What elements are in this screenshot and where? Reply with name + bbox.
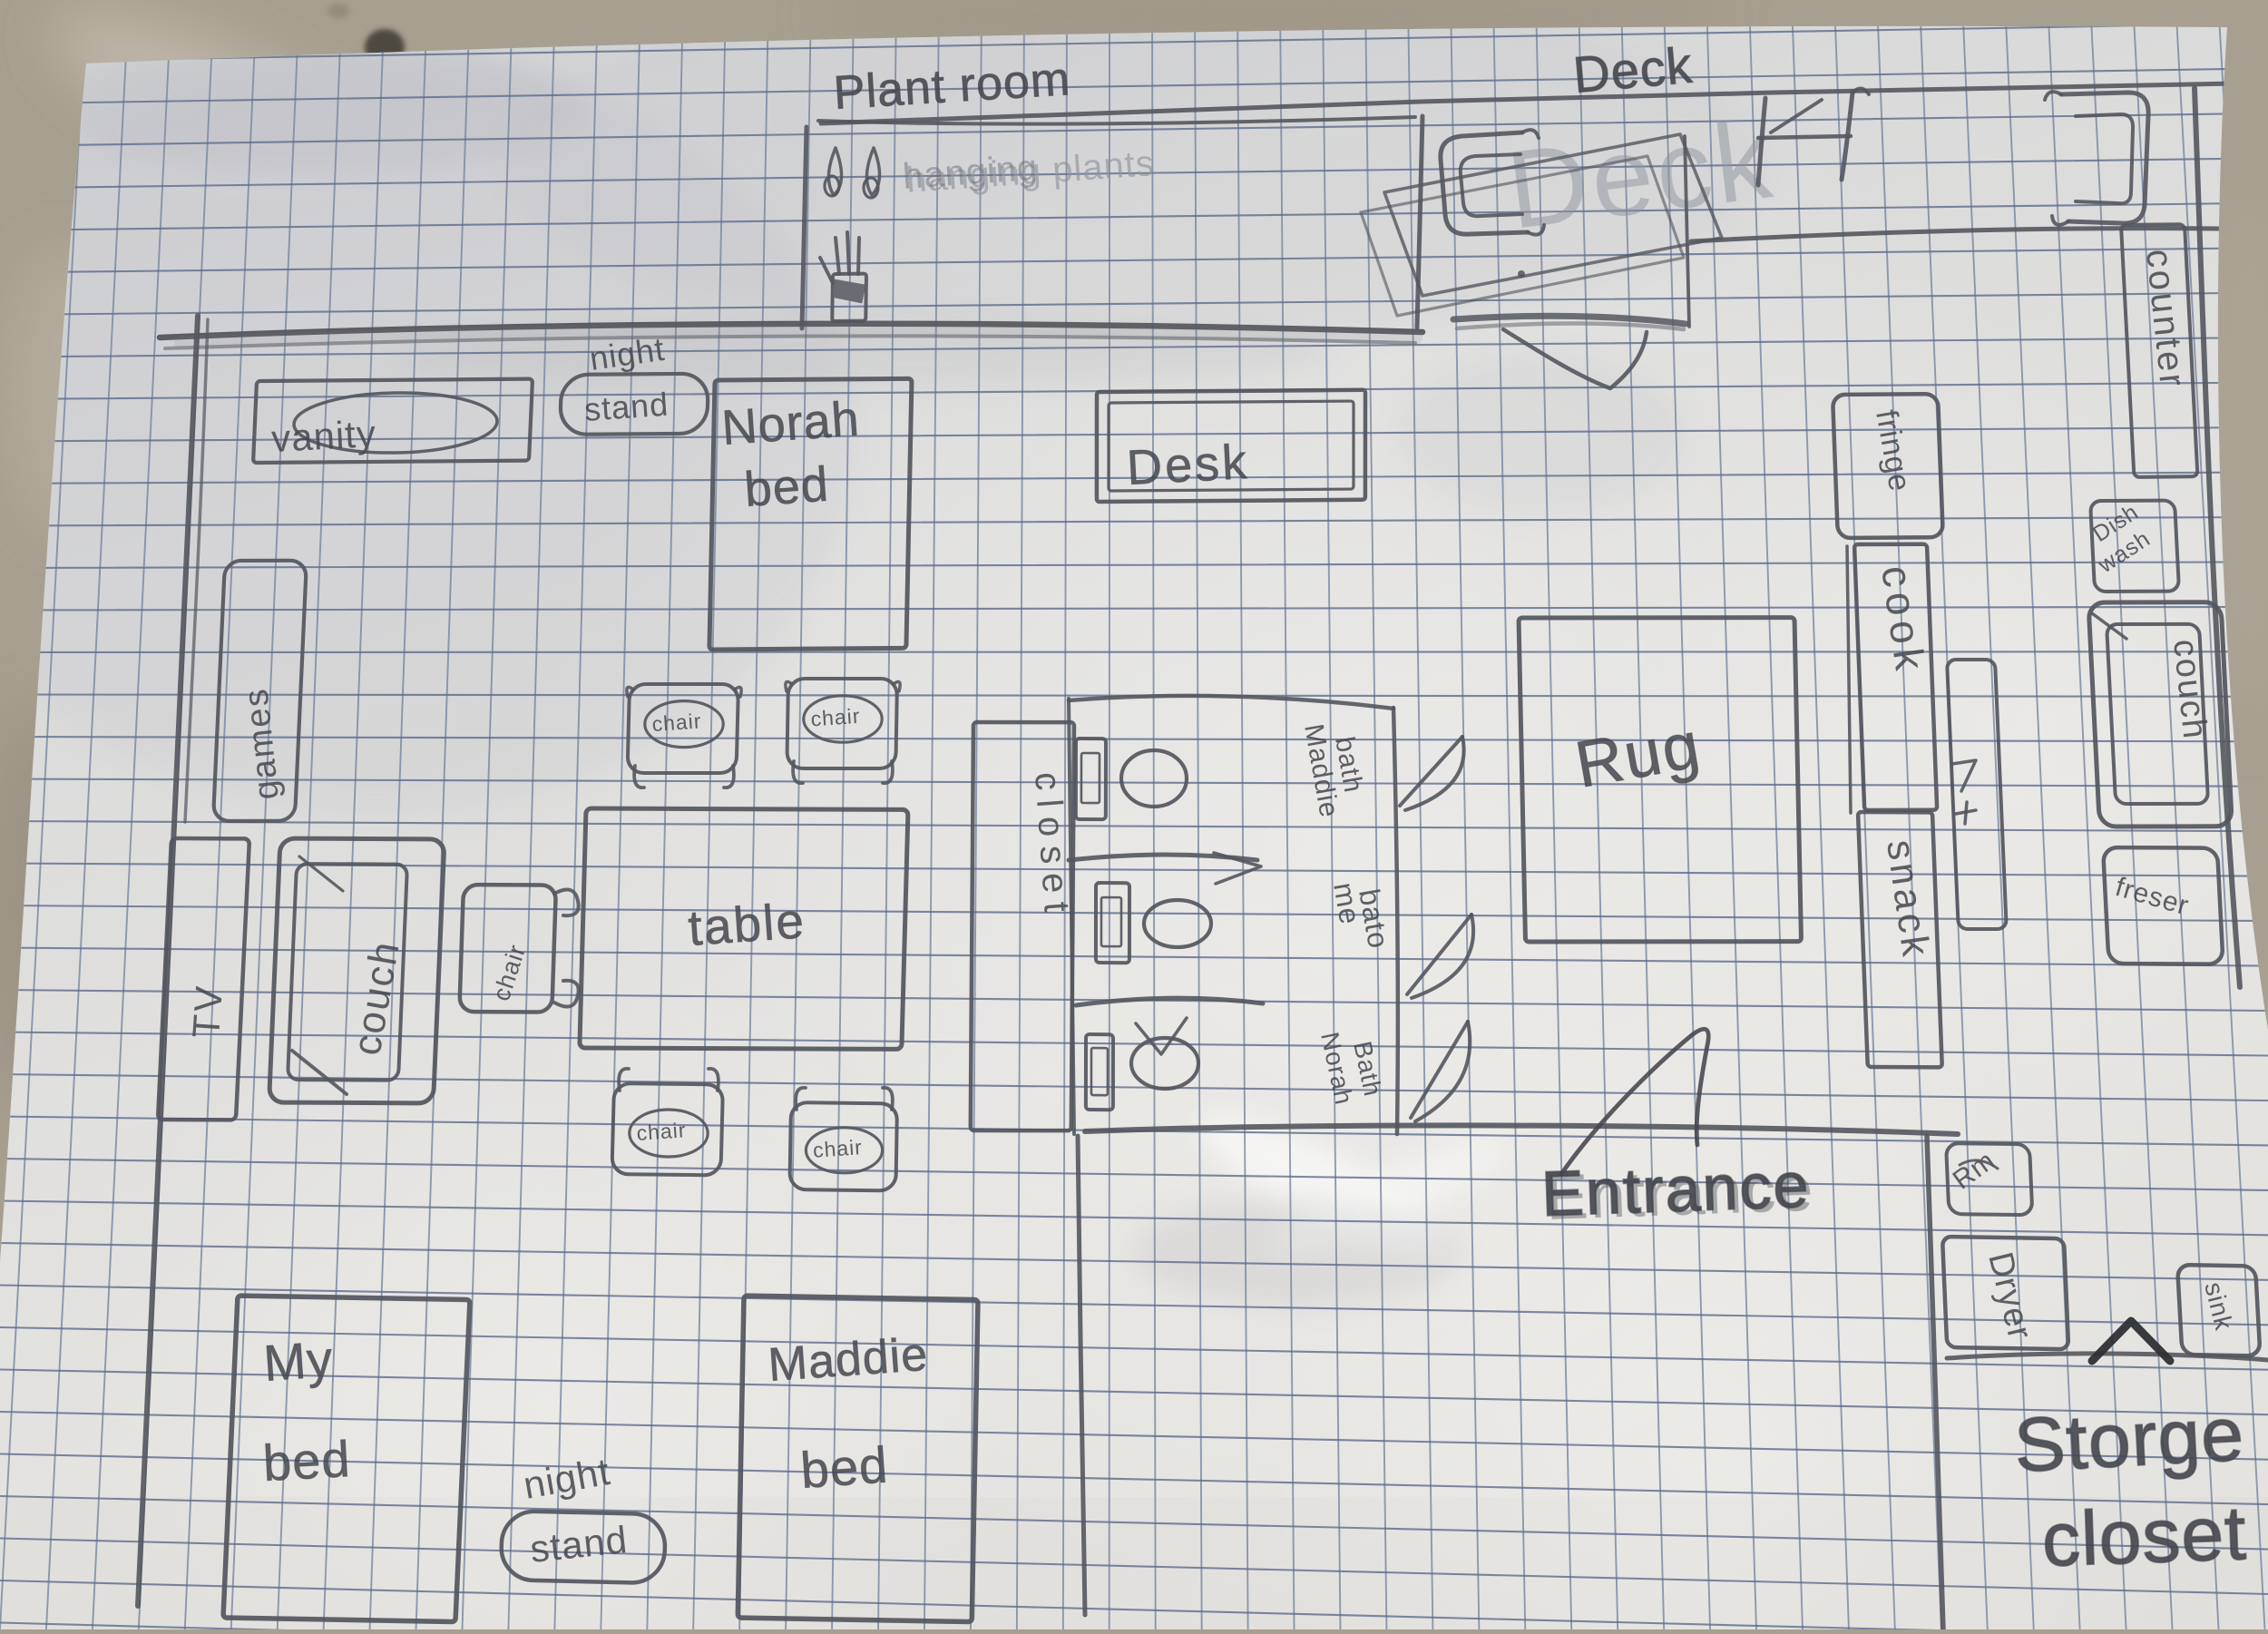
svg-text:Deck: Deck [1571,36,1696,103]
svg-text:Maddie: Maddie [767,1328,930,1392]
svg-text:closet: closet [2040,1490,2248,1582]
svg-text:TV: TV [184,983,230,1040]
svg-text:bed: bed [798,1435,890,1499]
svg-text:chair: chair [651,709,703,736]
svg-text:bed: bed [743,457,831,517]
svg-text:chair: chair [636,1118,688,1145]
svg-text:stand: stand [583,386,670,428]
svg-text:chair: chair [810,704,862,731]
svg-text:Storge: Storge [2012,1391,2246,1488]
svg-text:vanity: vanity [270,412,377,460]
svg-text:bed: bed [261,1430,352,1492]
svg-text:chair: chair [812,1135,864,1162]
svg-text:My: My [261,1330,335,1392]
svg-text:Entrance: Entrance [1545,1153,1816,1233]
svg-text:Desk: Desk [1125,435,1250,495]
svg-text:Norah: Norah [720,392,862,455]
svg-text:table: table [687,892,807,956]
